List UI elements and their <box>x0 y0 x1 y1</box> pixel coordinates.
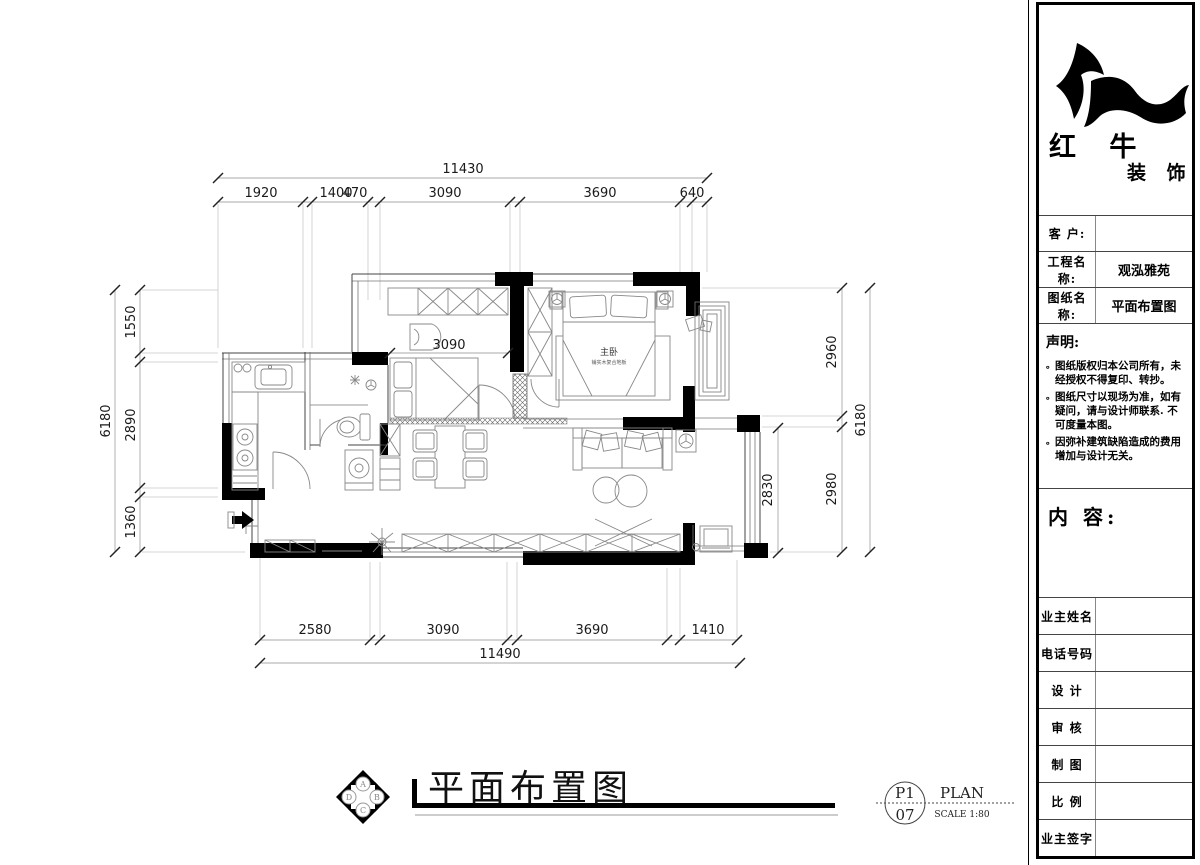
dining-furniture <box>413 426 487 488</box>
bullet-mark: 。 <box>1046 390 1055 432</box>
dimension-top: 11430 1920 1400 470 3090 3690 640 <box>213 162 712 207</box>
drafter-value <box>1096 746 1192 782</box>
bullet-mark: 。 <box>1046 359 1055 387</box>
sig-row-owner-signature: 业主签字 <box>1039 819 1192 856</box>
dim-top-seg-6: 640 <box>680 186 705 201</box>
statement-item-text: 图纸版权归本公司所有，未经授权不得复印、转抄。 <box>1055 359 1187 387</box>
project-name-label: 工程名称: <box>1039 252 1096 287</box>
bullet-mark: 。 <box>1046 435 1055 463</box>
bedroom2-inner-dimension: 3090 <box>385 338 513 358</box>
dim-top-seg-4: 3090 <box>428 186 461 201</box>
dim-right-seg-2: 2980 <box>825 472 840 505</box>
field-row-client: 客 户: <box>1039 215 1192 251</box>
dim-left-seg-3: 1360 <box>124 505 139 538</box>
statement-section: 声明: 。 图纸版权归本公司所有，未经授权不得复印、转抄。 。 图纸尺寸以现场为… <box>1039 323 1192 488</box>
drawing-title: 平面布置图 <box>412 768 838 815</box>
dim-top-overall: 11430 <box>442 162 483 177</box>
dim-right-overall: 6180 <box>854 403 869 436</box>
dim-inner-3090: 3090 <box>432 338 465 353</box>
scale-value <box>1096 783 1192 819</box>
sheet-inner-border <box>1028 0 1029 865</box>
content-section: 内 容: <box>1039 488 1192 597</box>
project-name-value: 观泓雅苑 <box>1096 252 1192 287</box>
sig-row-reviewer: 审 核 <box>1039 708 1192 745</box>
owner-signature-label: 业主签字 <box>1039 820 1096 856</box>
sheet-name-value: 平面布置图 <box>1096 288 1192 323</box>
dim-top-seg-1: 1920 <box>244 186 277 201</box>
drawing-sheet: 11430 1920 1400 470 3090 3690 640 2580 3… <box>0 0 1200 865</box>
dim-right-inner: 2830 <box>761 473 776 506</box>
sig-row-scale: 比 例 <box>1039 782 1192 819</box>
walls <box>222 272 768 565</box>
compass-letter-b: B <box>374 793 380 802</box>
phone-label: 电话号码 <box>1039 635 1096 671</box>
dim-top-seg-3: 470 <box>343 186 368 201</box>
dim-left-seg-1: 1550 <box>124 305 139 338</box>
scale-label: 比 例 <box>1039 783 1096 819</box>
sig-row-phone: 电话号码 <box>1039 634 1192 671</box>
company-name: 红 牛 <box>1049 125 1139 164</box>
field-row-sheet-name: 图纸名称: 平面布置图 <box>1039 287 1192 323</box>
dimension-right: 2830 2960 2980 6180 <box>761 283 875 558</box>
stamp-scale-label: SCALE 1:80 <box>934 810 989 820</box>
sheet-name-label: 图纸名称: <box>1039 288 1096 323</box>
dim-bottom-seg-4: 1410 <box>691 623 724 638</box>
statement-item: 。 因弥补建筑缺陷造成的费用增加与设计无关。 <box>1046 435 1187 463</box>
compass-icon: A B C D <box>336 770 390 824</box>
content-label: 内 容: <box>1048 501 1192 530</box>
sig-row-owner-name: 业主姓名 <box>1039 597 1192 634</box>
master-bedroom-furniture: 主卧 铺实木复合地板 <box>528 288 712 400</box>
client-label: 客 户: <box>1039 216 1096 251</box>
sheet-stamp: P1 07 PLAN SCALE 1:80 <box>876 782 1014 824</box>
owner-name-value <box>1096 598 1192 634</box>
kitchen-fixtures <box>232 362 305 490</box>
statement-item: 。 图纸尺寸以现场为准，如有疑问，请与设计师联系. 不可度量本图。 <box>1046 390 1187 432</box>
statement-item: 。 图纸版权归本公司所有，未经授权不得复印、转抄。 <box>1046 359 1187 387</box>
owner-name-label: 业主姓名 <box>1039 598 1096 634</box>
ceiling-fan-icon <box>657 291 673 307</box>
field-row-project: 工程名称: 观泓雅苑 <box>1039 251 1192 287</box>
statement-item-text: 图纸尺寸以现场为准，如有疑问，请与设计师联系. 不可度量本图。 <box>1055 390 1187 432</box>
stamp-page-number: P1 <box>895 784 915 802</box>
bedroom2-furniture <box>380 288 508 490</box>
drawing-title-text: 平面布置图 <box>428 768 633 809</box>
dim-right-seg-1: 2960 <box>825 335 840 368</box>
phone-value <box>1096 635 1192 671</box>
dim-left-seg-2: 2890 <box>124 408 139 441</box>
dimension-left: 6180 1550 2890 1360 <box>99 285 145 557</box>
stamp-page-total: 07 <box>895 806 914 824</box>
dimension-bottom: 2580 3090 3690 1410 11490 <box>255 623 745 668</box>
dim-top-seg-5: 3690 <box>583 186 616 201</box>
entry-arrow-icon <box>228 511 258 534</box>
dim-bottom-overall: 11490 <box>479 647 520 662</box>
statement-title: 声明: <box>1046 332 1187 352</box>
room-label-master-sub: 铺实木复合地板 <box>591 359 626 366</box>
title-block: 红 牛 装 饰 客 户: 工程名称: 观泓雅苑 图纸名称: 平面布置图 声明: … <box>1036 2 1195 859</box>
company-logo: 红 牛 装 饰 <box>1039 5 1192 215</box>
drafter-label: 制 图 <box>1039 746 1096 782</box>
compass-letter-a: A <box>359 780 366 789</box>
stamp-plan-label: PLAN <box>940 784 984 802</box>
bathroom-fixtures <box>337 375 376 490</box>
owner-signature-value <box>1096 820 1192 856</box>
dim-bottom-seg-2: 3090 <box>426 623 459 638</box>
compass-letter-c: C <box>360 806 366 815</box>
dim-bottom-seg-3: 3690 <box>575 623 608 638</box>
room-label-master: 主卧 <box>600 346 618 358</box>
bull-logo-icon <box>1039 15 1192 135</box>
company-name-2: 装 饰 <box>1127 158 1193 185</box>
living-room-furniture <box>573 428 732 552</box>
dim-bottom-seg-1: 2580 <box>298 623 331 638</box>
client-value <box>1096 216 1192 251</box>
sig-row-drafter: 制 图 <box>1039 745 1192 782</box>
compass-letter-d: D <box>346 793 352 802</box>
ceiling-fan-icon <box>676 430 696 452</box>
floor-plan-canvas: 11430 1920 1400 470 3090 3690 640 2580 3… <box>0 0 1030 865</box>
reviewer-label: 审 核 <box>1039 709 1096 745</box>
sig-row-designer: 设 计 <box>1039 671 1192 708</box>
designer-label: 设 计 <box>1039 672 1096 708</box>
dim-left-overall: 6180 <box>99 404 114 437</box>
statement-item-text: 因弥补建筑缺陷造成的费用增加与设计无关。 <box>1055 435 1187 463</box>
designer-value <box>1096 672 1192 708</box>
reviewer-value <box>1096 709 1192 745</box>
